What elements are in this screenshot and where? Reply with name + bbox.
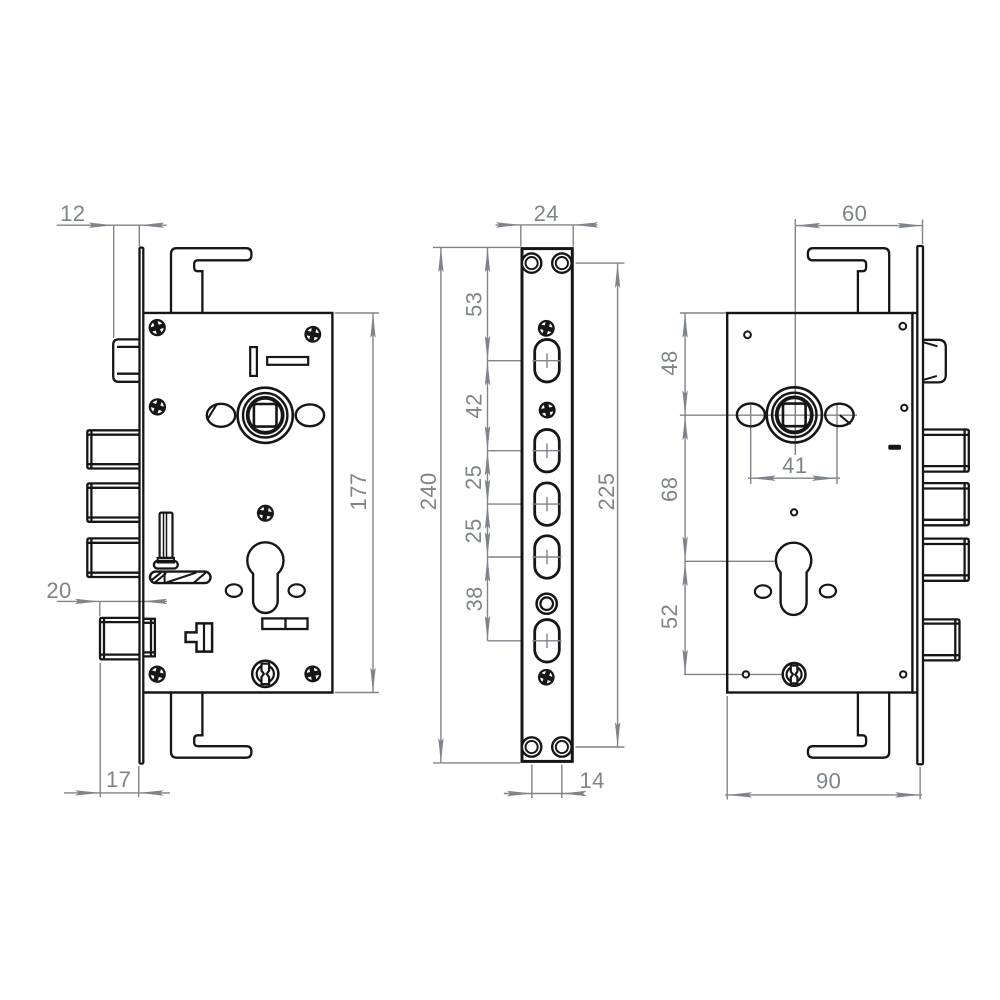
svg-text:177: 177 <box>346 473 371 511</box>
svg-text:240: 240 <box>416 472 441 510</box>
svg-text:25: 25 <box>461 465 486 490</box>
svg-text:38: 38 <box>462 586 487 611</box>
svg-text:25: 25 <box>461 518 486 543</box>
svg-text:41: 41 <box>782 453 807 478</box>
svg-text:12: 12 <box>60 201 85 226</box>
svg-text:48: 48 <box>657 350 682 375</box>
svg-text:53: 53 <box>461 292 486 317</box>
svg-text:17: 17 <box>106 767 131 792</box>
svg-text:60: 60 <box>842 201 867 226</box>
svg-text:24: 24 <box>534 201 559 226</box>
svg-text:52: 52 <box>657 604 682 629</box>
svg-text:225: 225 <box>594 473 619 511</box>
svg-text:42: 42 <box>462 393 487 418</box>
svg-text:14: 14 <box>580 768 605 793</box>
svg-text:68: 68 <box>657 477 682 502</box>
svg-text:20: 20 <box>46 578 71 603</box>
svg-text:90: 90 <box>816 769 841 794</box>
